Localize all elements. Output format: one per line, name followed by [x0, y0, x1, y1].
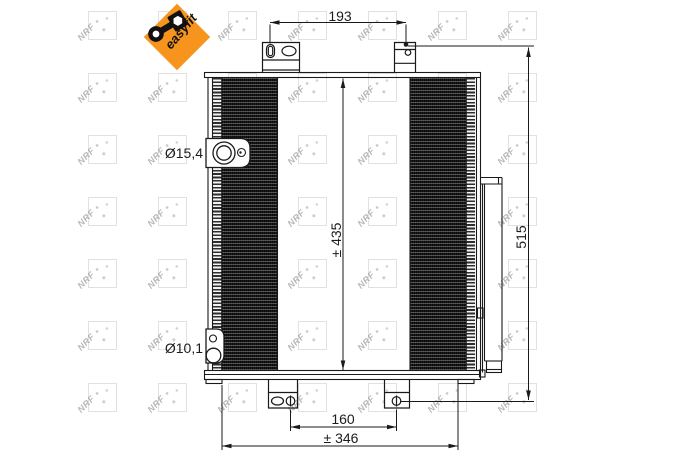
label-overall-height: 515	[513, 209, 529, 265]
inlet-port	[206, 139, 250, 168]
label-mount-spacing-top: 193	[319, 8, 361, 24]
bottom-mount-bracket-left	[269, 380, 298, 409]
label-mount-spacing-bottom: 160	[322, 411, 364, 427]
technical-drawing-canvas: NRFNRFNRFNRFNRFNRFNRFNRFNRFNRFNRFNRFNRFN…	[0, 0, 700, 460]
bottom-mount-bracket-right	[385, 380, 410, 409]
label-port-bottom-diameter: Ø10,1	[161, 340, 203, 356]
label-overall-width: ± 346	[305, 430, 377, 446]
receiver-drier	[478, 178, 503, 378]
condenser-line-drawing	[0, 0, 700, 460]
top-mount-bracket-right	[395, 42, 416, 72]
label-core-height: ± 435	[328, 212, 344, 268]
outlet-port	[206, 329, 224, 363]
top-mount-bracket-left	[263, 43, 300, 73]
easyfit-logo: easyfit	[138, 0, 222, 80]
label-port-top-diameter: Ø15,4	[161, 145, 203, 161]
